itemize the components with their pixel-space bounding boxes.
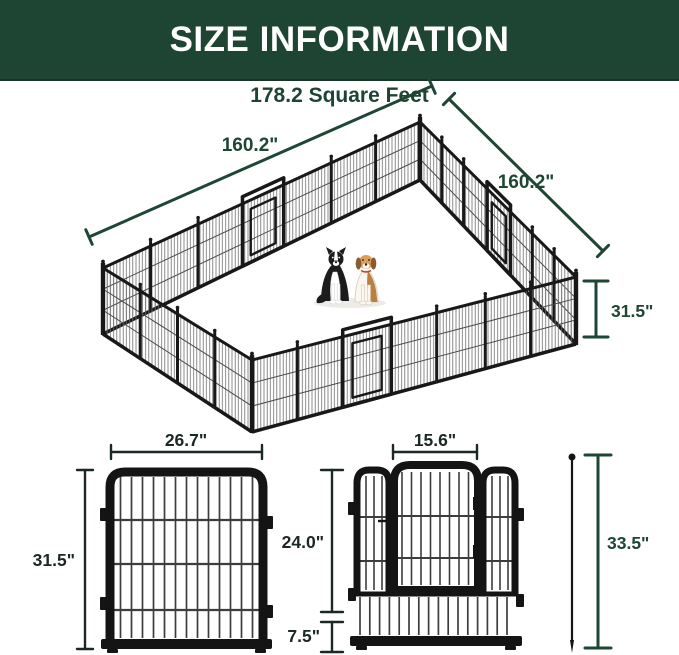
single-panel-diagram: [100, 472, 273, 653]
door-hinge: [473, 545, 484, 558]
connector-tab: [348, 588, 356, 601]
door-panel-diagram: [348, 465, 524, 650]
border-collie-icon: [317, 247, 349, 304]
door-side-section: [357, 470, 389, 594]
diagram-canvas: 160.2" 160.2" 31.5": [0, 0, 679, 655]
connector-tab: [348, 502, 356, 515]
dimension-pen-panel-height: 31.5": [584, 281, 653, 337]
post-pin: [329, 155, 333, 159]
post-pin: [440, 135, 444, 139]
post-pin: [462, 157, 466, 161]
mesh-wire: [420, 141, 576, 299]
post-pin: [529, 280, 533, 284]
connector-tab: [100, 597, 108, 610]
back-left-width-label: 160.2": [222, 135, 279, 156]
bottom-section-height-label: 7.5": [287, 626, 320, 646]
dimension-door-height: 24.0": [282, 470, 343, 612]
post-pin: [531, 225, 535, 229]
back-right-width-label: 160.2": [498, 172, 555, 193]
post-pin: [435, 304, 439, 308]
door-gate: [394, 465, 478, 590]
post-pin: [483, 292, 487, 296]
post-pin: [552, 247, 556, 251]
dimension-bottom-section-height: 7.5": [287, 622, 343, 652]
panel-width-label: 26.7": [165, 430, 207, 450]
door-panel-mesh-bars: [359, 472, 513, 635]
ground-stake-icon: [569, 454, 576, 654]
connector-tab: [516, 508, 524, 521]
door-panel-base: [350, 636, 522, 646]
post-pin: [574, 269, 578, 273]
door-side-section: [483, 470, 515, 594]
door-width-label: 15.6": [414, 430, 456, 450]
dimension-panel-width: 26.7": [111, 430, 262, 459]
panel-base: [101, 639, 272, 649]
connector-tab: [265, 516, 273, 529]
post-pin: [296, 340, 300, 344]
panel-height-label: 31.5": [33, 550, 75, 570]
connector-tab: [265, 605, 273, 618]
pen-panel-height-label: 31.5": [611, 301, 653, 321]
panel-mesh-bars: [115, 477, 259, 638]
post-pin: [213, 329, 217, 333]
post-pin: [196, 216, 200, 220]
door-hinge: [473, 497, 484, 510]
post-pin: [250, 352, 254, 356]
post-pin: [418, 114, 422, 118]
fence-wall: [250, 269, 578, 433]
size-information-infographic: SIZE INFORMATION 178.2 Square Feet: [0, 0, 679, 655]
post-pin: [374, 134, 378, 138]
dimension-panel-height: 31.5": [33, 470, 93, 649]
post-pin: [101, 260, 105, 264]
post-pin: [176, 306, 180, 310]
fence-mesh: [252, 277, 576, 432]
door-height-label: 24.0": [282, 532, 324, 552]
post-pin: [138, 283, 142, 287]
post-pin: [149, 238, 153, 242]
dogs-illustration: [314, 247, 386, 308]
connector-tab: [100, 508, 108, 521]
stake-height-label: 33.5": [607, 533, 649, 553]
dimension-door-width: 15.6": [393, 430, 477, 459]
beagle-icon: [355, 255, 378, 305]
dimension-stake-height: 33.5": [585, 455, 649, 648]
connector-tab: [516, 594, 524, 607]
